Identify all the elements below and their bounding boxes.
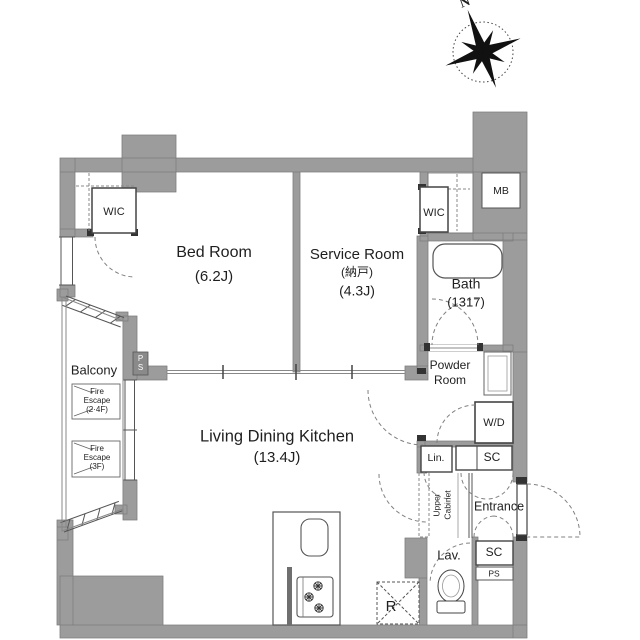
bedroom-size: (6.2J) (195, 268, 233, 285)
washer-dryer-label: W/D (483, 417, 504, 429)
bedroom-label: Bed Room (176, 244, 252, 261)
upper-cabinet-label-1: Upper (431, 493, 441, 516)
window-balcony-ldk (123, 380, 137, 480)
upper-cabinet-label-2: Cabinet (442, 490, 452, 520)
linen-label: Lin. (428, 452, 445, 464)
floor-plan-page: N Bed Room (6.2J) Service Room (納戸) (4.3… (0, 0, 640, 640)
shoe-closet-lower-label: SC (486, 545, 503, 559)
ldk-label: Living Dining Kitchen (200, 427, 354, 445)
shoe-closet-upper-label: SC (484, 450, 501, 464)
pipe-shaft-balcony-p: P (138, 354, 143, 363)
powder-room-label-2: Room (434, 373, 466, 387)
kitchen-sink (301, 519, 328, 556)
window-bedroom-west (59, 237, 75, 285)
kitchen-counter (273, 512, 340, 625)
service-room-label: Service Room (310, 246, 404, 263)
balcony-label: Balcony (71, 362, 118, 377)
pipe-shaft-lower-label: PS (488, 568, 500, 578)
fire-escape-upper-1: Fire (90, 387, 104, 396)
toilet (437, 570, 465, 613)
bath-size: (1317) (447, 294, 485, 309)
bathtub (433, 244, 502, 278)
kitchen-partition-wall (287, 567, 292, 625)
fire-escape-lower-3: (3F) (90, 462, 105, 471)
wic-bedroom-label: WIC (103, 206, 124, 218)
floor-plan: N Bed Room (6.2J) Service Room (納戸) (4.3… (0, 0, 640, 640)
meter-box-label: MB (493, 185, 509, 197)
fire-escape-labels: Fire Escape (2·4F) Fire Escape (3F) (84, 387, 111, 471)
fire-escape-lower-1: Fire (90, 444, 104, 453)
entrance-step-lines (458, 473, 472, 538)
pipe-shaft-balcony-s: S (138, 363, 143, 372)
lavatory-label: Lav. (437, 547, 461, 562)
refrigerator-label: R (386, 598, 397, 615)
service-room-jp: (納戸) (341, 265, 373, 279)
fire-escape-upper-2: Escape (84, 396, 111, 405)
open-partition (167, 364, 405, 380)
compass-rose: N (425, 0, 534, 101)
bath-label: Bath (452, 276, 481, 292)
powder-sink (484, 352, 511, 395)
fire-escape-upper-3: (2·4F) (86, 405, 108, 414)
powder-room-label-1: Powder (430, 358, 471, 372)
compass-north-label: N (458, 0, 473, 12)
wic-service-label: WIC (423, 207, 444, 219)
refrigerator-space (377, 582, 419, 624)
fire-escape-lower-2: Escape (84, 453, 111, 462)
service-room-size: (4.3J) (339, 283, 375, 299)
ldk-size: (13.4J) (254, 449, 301, 466)
entrance-label: Entrance (474, 499, 524, 513)
